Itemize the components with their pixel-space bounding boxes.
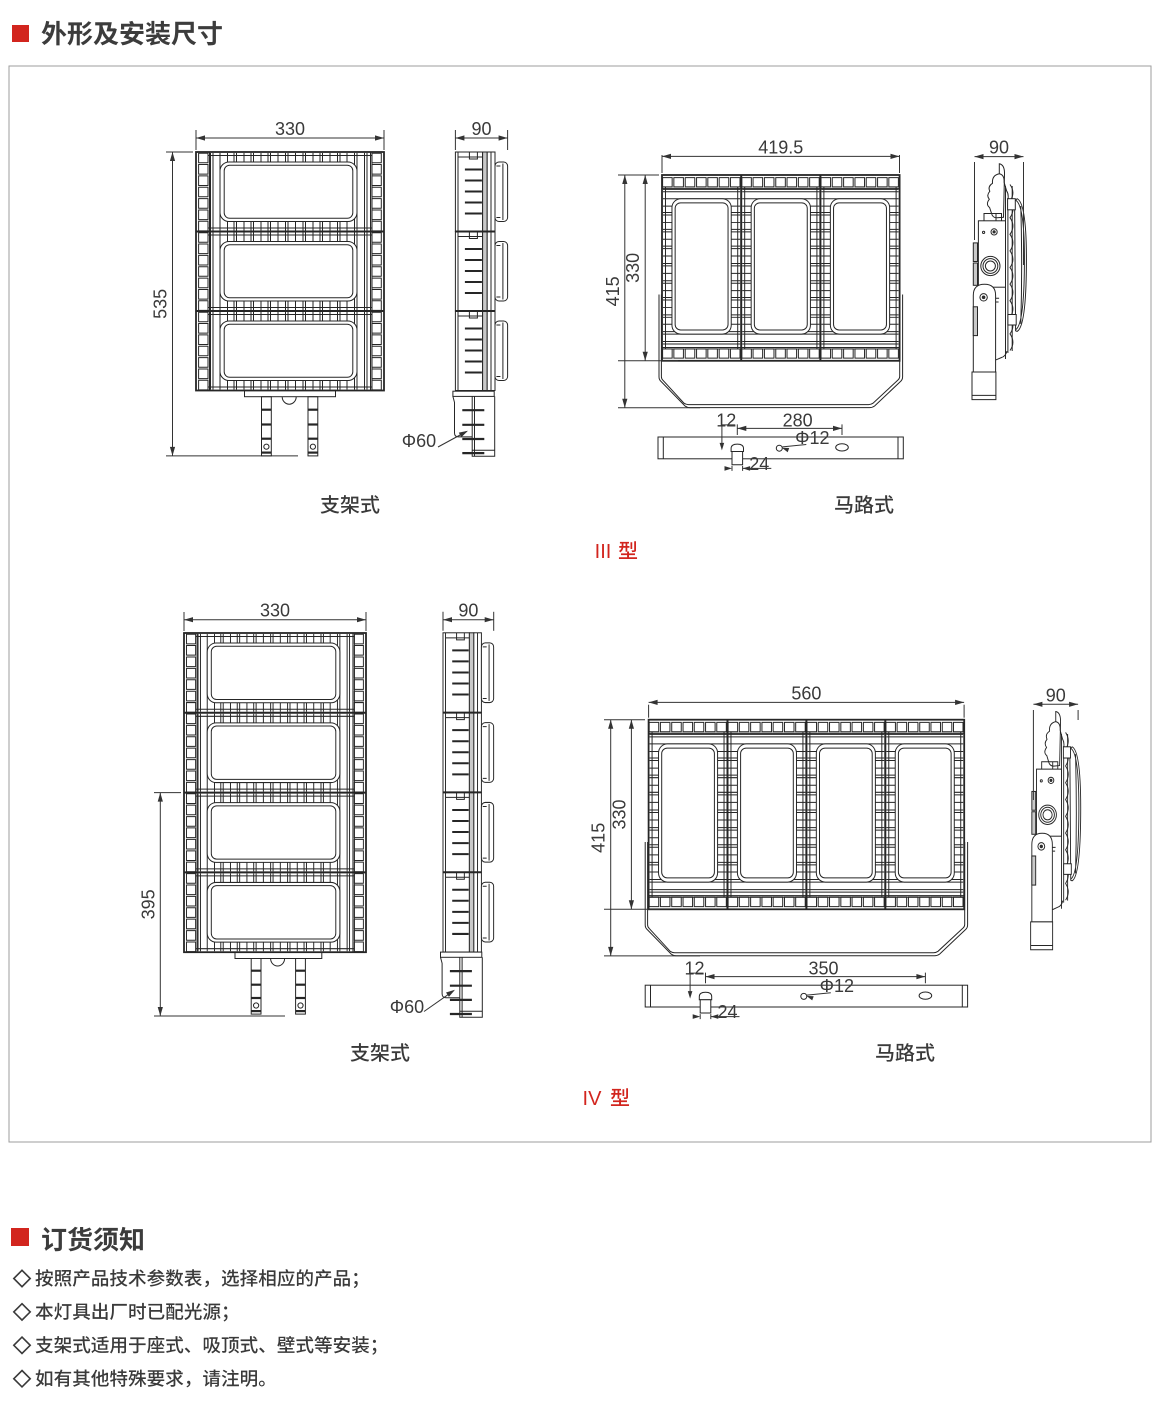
svg-text:330: 330 — [260, 601, 290, 621]
svg-text:24: 24 — [717, 1002, 737, 1022]
svg-text:415: 415 — [589, 823, 609, 853]
svg-text:90: 90 — [471, 119, 491, 139]
svg-text:90: 90 — [458, 601, 478, 621]
svg-text:330: 330 — [609, 799, 629, 829]
svg-text:90: 90 — [989, 138, 1009, 158]
svg-text:III: III — [595, 541, 612, 563]
svg-text:IV: IV — [583, 1088, 603, 1110]
svg-text:Φ60: Φ60 — [402, 431, 436, 451]
svg-text:330: 330 — [623, 253, 643, 283]
svg-text:90: 90 — [1046, 685, 1066, 705]
svg-text:535: 535 — [151, 289, 171, 319]
svg-text:560: 560 — [791, 683, 821, 703]
svg-text:12: 12 — [716, 410, 736, 430]
svg-text:395: 395 — [138, 889, 158, 919]
svg-text:419.5: 419.5 — [758, 137, 803, 157]
svg-text:415: 415 — [603, 276, 623, 306]
svg-text:24: 24 — [749, 454, 769, 474]
svg-text:12: 12 — [684, 959, 704, 979]
svg-text:Φ60: Φ60 — [390, 997, 424, 1017]
svg-text:330: 330 — [275, 119, 305, 139]
